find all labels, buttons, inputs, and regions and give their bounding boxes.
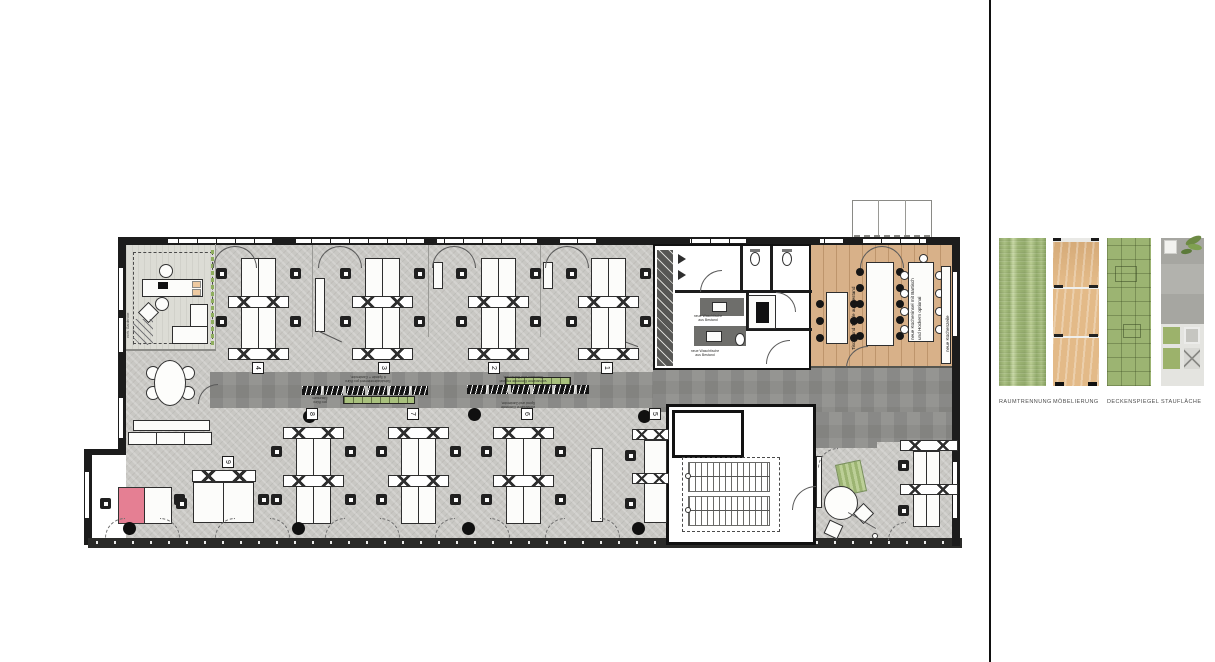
window-top <box>437 239 537 243</box>
window-mullion <box>843 238 844 244</box>
window-mullion <box>577 238 578 244</box>
sideboard-x <box>283 427 344 439</box>
lounge-side-note: vorh. Garderobe <box>126 292 132 338</box>
office-chair <box>216 268 227 279</box>
office-chair <box>450 446 461 457</box>
window-tick <box>636 541 638 544</box>
material-swatch-stauflaeche <box>1161 238 1204 386</box>
corridor-note-line2: Spind und Garderobe, <box>468 401 568 405</box>
window-tick <box>384 541 386 544</box>
window-tick <box>330 541 332 544</box>
toilet <box>750 252 760 266</box>
window-mullion <box>235 238 236 244</box>
window-left <box>119 268 123 310</box>
window-mullion <box>558 238 559 244</box>
window-tick <box>132 541 134 544</box>
kitchen-chair <box>896 316 904 324</box>
office-chair <box>176 498 187 509</box>
door-swing-dashed <box>105 518 125 538</box>
green-bench-strip <box>343 396 415 404</box>
desk-group-number: 5 <box>649 408 661 420</box>
window-tick <box>348 541 350 544</box>
balcony-divider <box>878 200 879 238</box>
sideboard-x <box>493 427 554 439</box>
wc-note-line2: aus Bestand <box>688 318 728 322</box>
window-tick <box>888 541 890 544</box>
office-chair <box>456 316 467 327</box>
window-top <box>560 239 596 243</box>
window-tick <box>222 541 224 544</box>
window-tick <box>510 541 512 544</box>
window-tick <box>420 541 422 544</box>
kitchen-island-label: neue Kücheninsel mit Bartisch <box>910 264 917 340</box>
toilet <box>782 252 792 266</box>
monitor <box>158 282 168 289</box>
locker-strip-hatched <box>467 385 589 394</box>
cabinet-divider <box>156 432 157 445</box>
window-mullion <box>254 238 255 244</box>
cabinet-divider <box>184 432 185 445</box>
balcony-divider <box>905 200 906 238</box>
window-right <box>953 272 957 336</box>
window-tick <box>618 541 620 544</box>
window-left <box>119 318 123 352</box>
swatch-handle <box>1089 285 1098 288</box>
stair-dashed-outline <box>682 457 780 532</box>
window-mullion <box>406 238 407 244</box>
plant-leaf <box>1181 249 1192 255</box>
sideboard-x <box>578 348 639 360</box>
desk-group-number: 7 <box>407 408 419 420</box>
office-chair <box>555 446 566 457</box>
office-chair <box>566 268 577 279</box>
window-top <box>296 239 424 243</box>
lounge-chair <box>155 297 169 311</box>
window-mullion <box>368 238 369 244</box>
window-mullion <box>159 238 160 244</box>
panel-divider <box>989 0 991 662</box>
credenza <box>133 420 210 431</box>
window-mullion <box>634 238 635 244</box>
material-swatch-deckenspiegel <box>1107 238 1151 386</box>
window-tick <box>276 541 278 544</box>
wc-wall <box>740 246 743 293</box>
window-tick <box>294 541 296 544</box>
window-mullion <box>824 238 825 244</box>
window-mullion <box>520 238 521 244</box>
office-chair <box>625 450 636 461</box>
sideboard-x <box>578 296 639 308</box>
desk <box>193 482 224 523</box>
window-tick <box>114 541 116 544</box>
toilet <box>735 333 745 346</box>
window-tick <box>474 541 476 544</box>
material-swatch-raumtrennung <box>999 238 1046 386</box>
oval-table <box>154 360 186 406</box>
window-left <box>119 398 123 438</box>
window-mullion <box>919 238 920 244</box>
office-chair <box>530 316 541 327</box>
sideboard-x <box>493 475 554 487</box>
office-chair <box>481 446 492 457</box>
office-chair <box>640 316 651 327</box>
swatch-tile <box>1115 266 1137 282</box>
wc-note: neue Waschtischeaus Bestand <box>682 349 728 357</box>
office-chair <box>271 494 282 505</box>
kitchen-table-small <box>826 292 848 344</box>
lounge-table-partition <box>126 349 216 351</box>
desk <box>223 482 254 523</box>
sideboard-x <box>900 484 958 495</box>
window-mullion <box>197 238 198 244</box>
office-chair <box>100 498 111 509</box>
sideboard-x <box>468 348 529 360</box>
corridor-note-line2: 6 Spinde + Garderobe, <box>316 375 420 379</box>
window-tick <box>582 541 584 544</box>
structural-column <box>292 522 305 535</box>
glass-partition <box>312 245 313 337</box>
office-chair <box>898 460 909 471</box>
window-left-lower <box>85 472 89 518</box>
window-mullion <box>330 238 331 244</box>
corridor-note-line1: Schubladenelement pro Büro <box>316 379 420 383</box>
locker-strip-hatched <box>302 386 428 395</box>
wc-lockers <box>657 250 673 366</box>
structural-column <box>462 522 475 535</box>
corridor-note-line1: pro Büro <box>298 400 342 404</box>
window-tick <box>402 541 404 544</box>
office-chair <box>340 316 351 327</box>
kitchen-table-long <box>866 262 894 346</box>
sideboard-x <box>228 348 289 360</box>
window-tick <box>546 541 548 544</box>
kitchen-chair <box>816 300 824 308</box>
cabinet-row <box>128 432 212 445</box>
photo-box <box>1164 240 1177 254</box>
window-tick <box>564 541 566 544</box>
material-label-stauflaeche: STAUFLÄCHE <box>1161 399 1201 405</box>
lounge-chair <box>159 264 173 278</box>
swatch-cap <box>1091 238 1099 241</box>
floor-lamp-base <box>872 533 878 539</box>
bay-cabinet <box>591 448 603 522</box>
desk-group-number: 2 <box>488 362 500 374</box>
corridor-note-line2: Stauraum und Garderobe, <box>480 375 566 379</box>
window-mullion <box>463 238 464 244</box>
window-top <box>690 239 746 243</box>
wc-shaft <box>756 302 769 323</box>
office-chair <box>414 268 425 279</box>
office-chair <box>340 268 351 279</box>
desk-tray <box>192 281 201 288</box>
wc-note-line2: aus Bestand <box>682 353 728 357</box>
sideboard-x <box>228 296 289 308</box>
office-chair <box>345 494 356 505</box>
kitchenette-label: neue Küchenzeile <box>945 290 953 352</box>
window-tick <box>816 541 818 544</box>
office-chair <box>450 494 461 505</box>
kitchen-corridor-partition <box>810 366 952 368</box>
urinal <box>678 270 686 280</box>
window-mullion <box>444 238 445 244</box>
wc-wall <box>770 246 773 293</box>
corridor-note: Schubladenelement pro Büro6 Spinde + Gar… <box>316 374 420 383</box>
corridor-note: pro BüroStauraum <box>298 396 342 404</box>
bar-stool <box>900 289 909 298</box>
shelf-x-brace <box>1184 348 1200 369</box>
window-mullion <box>140 238 141 244</box>
desk-group-number: 8 <box>306 408 318 420</box>
office-chair <box>271 446 282 457</box>
swatch-cap <box>1053 238 1061 241</box>
exterior-wall-bottom <box>88 538 962 548</box>
material-label-moebelierung: MÖBELIERUNG <box>1053 399 1099 405</box>
office-chair <box>625 498 636 509</box>
window-mullion <box>938 238 939 244</box>
window-tick <box>906 541 908 544</box>
window-tick <box>204 541 206 544</box>
window-mullion <box>311 238 312 244</box>
window-tick <box>456 541 458 544</box>
office-chair <box>258 494 269 505</box>
sideboard-x <box>900 440 958 451</box>
office-chair <box>456 268 467 279</box>
bar-stool <box>900 325 909 334</box>
window-mullion <box>482 238 483 244</box>
window-tick <box>942 541 944 544</box>
office-chair <box>555 494 566 505</box>
window-tick <box>240 541 242 544</box>
sideboard-x <box>283 475 344 487</box>
window-top <box>862 239 926 243</box>
window-mullion <box>539 238 540 244</box>
glass-partition <box>428 245 429 337</box>
sideboard-x <box>632 473 669 484</box>
window-mullion <box>292 238 293 244</box>
sideboard-x <box>388 427 449 439</box>
window-mullion <box>216 238 217 244</box>
office-chair <box>376 494 387 505</box>
shelf-open-box <box>1184 327 1200 344</box>
shelf-green-box <box>1163 327 1180 344</box>
swatch-foot <box>1055 382 1064 386</box>
desk-group-number: 1 <box>601 362 613 374</box>
window-mullion <box>387 238 388 244</box>
office-chair <box>640 268 651 279</box>
photo-panel <box>1161 264 1204 294</box>
structural-column <box>468 408 481 421</box>
window-tick <box>438 541 440 544</box>
window-mullion <box>349 238 350 244</box>
window-tick <box>186 541 188 544</box>
sideboard-x <box>352 296 413 308</box>
window-mullion <box>425 238 426 244</box>
corridor-note: vorhandene Elemente ergänztStauraum und … <box>480 374 566 383</box>
window-tick <box>492 541 494 544</box>
window-tick <box>96 541 98 544</box>
window-mullion <box>900 238 901 244</box>
material-label-deckenspiegel: DECKENSPIEGEL <box>1107 399 1159 405</box>
office-chair <box>414 316 425 327</box>
window-tick <box>924 541 926 544</box>
kitchen-island-label: und Hockern optional <box>917 264 924 340</box>
window-tick <box>258 541 260 544</box>
sideboard-x <box>388 475 449 487</box>
sink <box>712 302 727 312</box>
office-chair <box>376 446 387 457</box>
window-mullion <box>178 238 179 244</box>
floor-plan-sheet: neue Waschtischeaus Bestandneue Waschtis… <box>0 0 1215 662</box>
window-tick <box>852 541 854 544</box>
sideboard-x <box>352 348 413 360</box>
window-tick <box>600 541 602 544</box>
swatch-tile <box>1123 324 1141 338</box>
window-tick <box>150 541 152 544</box>
corridor-floor <box>210 372 660 408</box>
material-swatch-moebelierung <box>1053 238 1099 386</box>
window-mullion <box>501 238 502 244</box>
swatch-handle <box>1089 334 1098 337</box>
office-chair <box>216 316 227 327</box>
office-chair <box>290 316 301 327</box>
urinal <box>678 254 686 264</box>
desk-tray <box>192 289 201 296</box>
bay-cabinet <box>315 278 325 332</box>
sideboard-x <box>468 296 529 308</box>
office-chair <box>566 316 577 327</box>
office-chair <box>481 494 492 505</box>
kitchen-chair <box>816 334 824 342</box>
swatch-handle <box>1054 285 1063 288</box>
material-label-raumtrennung: RAUMTRENNUNG <box>999 399 1052 405</box>
bar-stool <box>919 254 928 263</box>
window-mullion <box>881 238 882 244</box>
window-mullion <box>615 238 616 244</box>
hatch-marks <box>133 319 153 345</box>
desk-group-number: 6 <box>521 408 533 420</box>
kitchen-tables-label: Tische und Stühle aus Bestand <box>851 262 859 350</box>
window-mullion <box>862 238 863 244</box>
window-mullion <box>273 238 274 244</box>
office-chair <box>290 268 301 279</box>
window-mullion <box>596 238 597 244</box>
balcony <box>852 200 932 238</box>
swatch-handle <box>1054 334 1063 337</box>
sink <box>706 331 722 342</box>
sideboard-x <box>632 429 669 440</box>
corridor-note-line1: vorhandene Elemente ergänzt <box>480 379 566 383</box>
office-chair <box>345 446 356 457</box>
corridor-note-line1: vorhandene Elemente <box>468 405 568 409</box>
desk-group-number: 3 <box>378 362 390 374</box>
structural-column <box>632 522 645 535</box>
window-tick <box>834 541 836 544</box>
desk <box>144 487 172 524</box>
wc-note: neue Waschtischeaus Bestand <box>688 314 728 322</box>
swatch-foot <box>1088 382 1097 386</box>
desk-group-number: 4 <box>252 362 264 374</box>
office-chair <box>898 505 909 516</box>
wc-wall <box>675 290 812 293</box>
window-top <box>168 239 272 243</box>
office-chair <box>530 268 541 279</box>
corridor-note-line2: Stauraum <box>298 396 342 400</box>
shelf-green-box <box>1163 348 1180 369</box>
window-tick <box>312 541 314 544</box>
sofa-segment <box>172 326 208 344</box>
service-room <box>672 410 744 458</box>
window-tick <box>654 541 656 544</box>
window-tick <box>528 541 530 544</box>
window-tick <box>870 541 872 544</box>
sideboard-x <box>192 470 256 482</box>
kitchen-chair <box>816 317 824 325</box>
window-tick <box>168 541 170 544</box>
corridor-note: vorhandene ElementeSpind und Garderobe, <box>468 400 568 409</box>
bar-stool <box>900 271 909 280</box>
window-tick <box>366 541 368 544</box>
bar-stool <box>900 307 909 316</box>
desk-group-number: 9 <box>222 456 234 468</box>
